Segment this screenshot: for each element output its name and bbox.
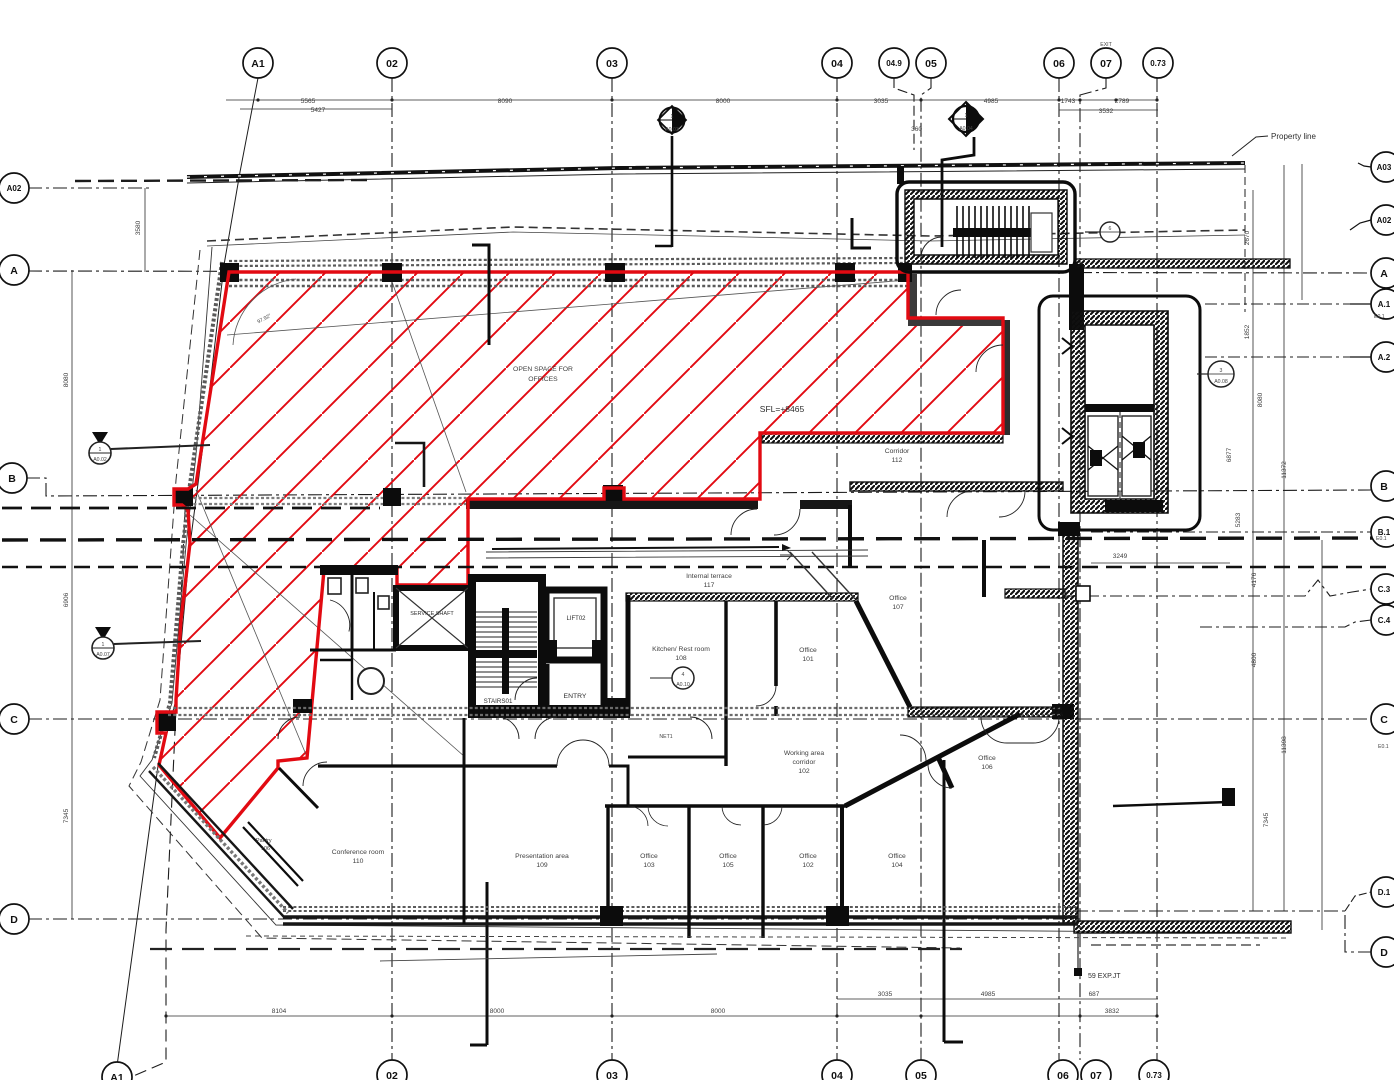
svg-text:107: 107: [892, 604, 904, 611]
svg-text:corridor: corridor: [792, 759, 816, 766]
svg-text:03: 03: [606, 58, 618, 70]
svg-text:4800: 4800: [1251, 652, 1258, 667]
svg-text:C: C: [10, 714, 18, 726]
svg-text:A02: A02: [7, 184, 22, 193]
svg-text:101: 101: [802, 656, 814, 663]
svg-text:A.2: A.2: [1378, 353, 1391, 362]
svg-text:3: 3: [1220, 368, 1223, 374]
svg-text:4985: 4985: [984, 98, 999, 105]
svg-text:ENTRY: ENTRY: [564, 693, 587, 700]
svg-text:A0.04: A0.04: [959, 126, 973, 132]
svg-text:1: 1: [102, 642, 105, 648]
svg-text:LIFT02: LIFT02: [566, 616, 586, 622]
svg-text:105: 105: [722, 862, 734, 869]
svg-text:3035: 3035: [874, 98, 889, 105]
svg-text:0.73: 0.73: [1146, 1071, 1162, 1080]
svg-text:3249: 3249: [1113, 553, 1128, 560]
svg-text:Office: Office: [888, 853, 906, 860]
svg-text:Corridor: Corridor: [885, 448, 910, 455]
svg-text:D: D: [10, 914, 18, 926]
svg-text:SFL=+8465: SFL=+8465: [760, 404, 805, 414]
svg-text:4: 4: [682, 672, 685, 678]
svg-text:D: D: [1380, 947, 1388, 959]
svg-text:6: 6: [1109, 226, 1112, 232]
svg-text:1: 1: [99, 447, 102, 453]
svg-text:7345: 7345: [63, 808, 70, 823]
svg-text:5565: 5565: [301, 98, 316, 105]
svg-text:104: 104: [891, 862, 903, 869]
svg-text:1: 1: [965, 113, 968, 119]
svg-text:C.4: C.4: [1378, 616, 1391, 625]
svg-text:Working area: Working area: [784, 750, 825, 757]
svg-text:Pantry: Pantry: [256, 838, 272, 844]
svg-text:Kitchen/ Rest room: Kitchen/ Rest room: [652, 646, 710, 653]
svg-text:A: A: [1380, 268, 1388, 280]
svg-text:3532: 3532: [1099, 108, 1114, 115]
svg-text:687: 687: [1089, 991, 1100, 998]
svg-text:8104: 8104: [272, 1008, 287, 1015]
svg-text:3035: 3035: [878, 991, 893, 998]
svg-text:4985: 4985: [981, 991, 996, 998]
svg-text:E0.1: E0.1: [1374, 314, 1385, 320]
svg-text:NET1: NET1: [659, 734, 672, 740]
svg-text:A: A: [10, 265, 18, 277]
svg-text:A.1: A.1: [1378, 300, 1391, 309]
svg-text:OPEN SPACE FOR: OPEN SPACE FOR: [513, 366, 573, 373]
svg-text:A0.02: A0.02: [93, 457, 107, 463]
svg-text:Office: Office: [889, 595, 907, 602]
svg-text:8080: 8080: [63, 372, 70, 387]
svg-text:0.73: 0.73: [1150, 59, 1166, 68]
svg-text:A0.03: A0.03: [665, 127, 679, 133]
svg-text:E0.1: E0.1: [1378, 744, 1389, 750]
svg-text:360: 360: [911, 126, 922, 133]
svg-text:07: 07: [1100, 58, 1112, 70]
svg-text:A1: A1: [110, 1072, 124, 1080]
svg-text:109: 109: [536, 862, 548, 869]
svg-text:8090: 8090: [498, 98, 513, 105]
svg-text:1: 1: [671, 114, 674, 120]
svg-text:02: 02: [386, 58, 398, 70]
svg-text:D.1: D.1: [1378, 888, 1391, 897]
svg-text:Office: Office: [640, 853, 658, 860]
svg-text:8000: 8000: [716, 98, 731, 105]
svg-text:59 EXP.JT: 59 EXP.JT: [1088, 973, 1121, 980]
svg-text:04: 04: [831, 1070, 843, 1080]
svg-text:117: 117: [704, 582, 715, 589]
svg-text:A1: A1: [251, 58, 265, 70]
svg-text:Office: Office: [719, 853, 737, 860]
svg-text:4176: 4176: [1251, 572, 1258, 587]
svg-text:6877: 6877: [1226, 447, 1233, 462]
svg-text:06: 06: [1057, 1070, 1069, 1080]
svg-text:3580: 3580: [135, 220, 142, 235]
svg-text:05: 05: [915, 1070, 927, 1080]
svg-text:3832: 3832: [1105, 1008, 1120, 1015]
svg-text:SERVICE SHAFT: SERVICE SHAFT: [410, 611, 454, 617]
svg-text:A0.07: A0.07: [96, 652, 110, 658]
svg-text:05: 05: [925, 58, 937, 70]
svg-text:5427: 5427: [311, 107, 326, 114]
svg-text:102: 102: [798, 768, 810, 775]
svg-text:OFFICES: OFFICES: [528, 376, 558, 383]
svg-text:B: B: [8, 473, 16, 485]
svg-text:04: 04: [831, 58, 843, 70]
svg-text:110: 110: [353, 858, 364, 865]
svg-text:03: 03: [606, 1070, 618, 1080]
svg-text:Internal terrace: Internal terrace: [686, 573, 732, 580]
svg-text:Conference room: Conference room: [332, 849, 385, 856]
svg-text:106: 106: [261, 846, 270, 852]
svg-text:02: 02: [386, 1070, 398, 1080]
svg-text:6906: 6906: [63, 592, 70, 607]
svg-text:Property line: Property line: [1271, 132, 1316, 141]
svg-text:C.3: C.3: [1378, 585, 1391, 594]
svg-text:Office: Office: [978, 755, 996, 762]
svg-text:7345: 7345: [1263, 812, 1270, 827]
svg-text:A02: A02: [1377, 216, 1392, 225]
svg-text:106: 106: [981, 764, 993, 771]
svg-text:102: 102: [802, 862, 814, 869]
svg-text:1743: 1743: [1061, 98, 1076, 105]
svg-text:07: 07: [1090, 1070, 1102, 1080]
svg-text:1852: 1852: [1244, 324, 1251, 339]
svg-text:STAIRS01: STAIRS01: [484, 698, 513, 705]
svg-text:Office: Office: [799, 647, 817, 654]
svg-text:8000: 8000: [490, 1008, 505, 1015]
svg-text:8000: 8000: [711, 1008, 726, 1015]
svg-text:11398: 11398: [1281, 736, 1288, 754]
svg-text:C: C: [1380, 714, 1388, 726]
svg-text:A0.10: A0.10: [676, 682, 690, 688]
svg-text:11372: 11372: [1281, 461, 1288, 479]
svg-text:04.9: 04.9: [886, 59, 902, 68]
svg-text:8080: 8080: [1257, 392, 1264, 407]
svg-text:108: 108: [675, 655, 687, 662]
svg-text:A03: A03: [1377, 163, 1392, 172]
svg-text:EXIT: EXIT: [1100, 42, 1112, 48]
svg-text:A0.08: A0.08: [1214, 379, 1228, 385]
svg-text:2789: 2789: [1115, 98, 1130, 105]
svg-text:B: B: [1380, 481, 1388, 493]
svg-text:5283: 5283: [1235, 512, 1242, 527]
svg-text:06: 06: [1053, 58, 1065, 70]
svg-text:E0.1: E0.1: [1376, 536, 1387, 542]
svg-text:Presentation area: Presentation area: [515, 853, 569, 860]
svg-text:Office: Office: [799, 853, 817, 860]
svg-text:103: 103: [643, 862, 655, 869]
svg-text:112: 112: [892, 457, 903, 464]
